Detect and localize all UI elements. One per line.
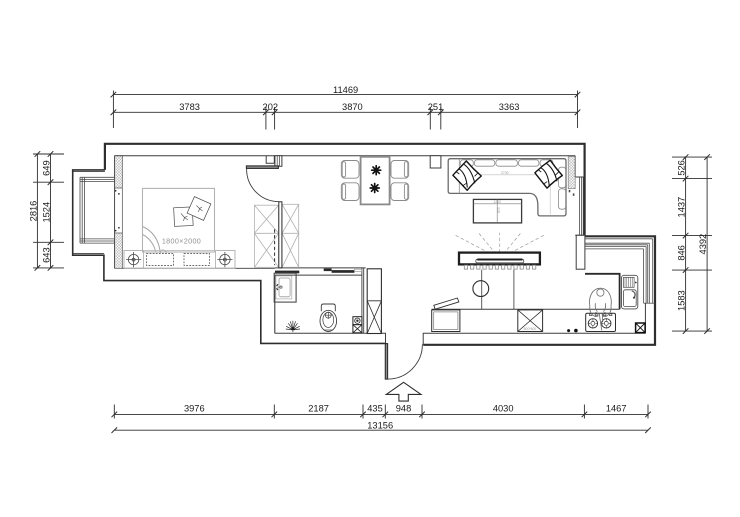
svg-text:4392: 4392 bbox=[698, 234, 708, 255]
svg-text:3976: 3976 bbox=[184, 404, 205, 414]
svg-text:600: 600 bbox=[497, 207, 501, 213]
svg-text:1437: 1437 bbox=[677, 197, 687, 218]
svg-text:251: 251 bbox=[428, 102, 444, 112]
svg-text:3870: 3870 bbox=[342, 102, 363, 112]
svg-text:3783: 3783 bbox=[179, 102, 200, 112]
svg-text:435: 435 bbox=[367, 404, 383, 414]
svg-text:2730: 2730 bbox=[501, 171, 509, 175]
svg-text:1800×2000: 1800×2000 bbox=[162, 237, 201, 246]
svg-text:202: 202 bbox=[263, 102, 279, 112]
svg-text:13156: 13156 bbox=[367, 421, 393, 431]
svg-text:1524: 1524 bbox=[42, 202, 52, 223]
svg-text:3363: 3363 bbox=[499, 102, 520, 112]
svg-text:948: 948 bbox=[396, 404, 412, 414]
svg-text:2816: 2816 bbox=[28, 201, 38, 222]
svg-text:1200: 1200 bbox=[494, 200, 502, 204]
svg-text:1583: 1583 bbox=[677, 290, 687, 311]
svg-text:800*600: 800*600 bbox=[524, 327, 537, 331]
svg-text:526: 526 bbox=[677, 160, 687, 176]
svg-text:643: 643 bbox=[42, 247, 52, 263]
svg-text:649: 649 bbox=[42, 160, 52, 176]
svg-text:846: 846 bbox=[677, 245, 687, 261]
svg-text:4030: 4030 bbox=[493, 404, 514, 414]
svg-text:1467: 1467 bbox=[606, 404, 627, 414]
svg-text:11469: 11469 bbox=[333, 85, 358, 95]
svg-text:2187: 2187 bbox=[308, 404, 329, 414]
